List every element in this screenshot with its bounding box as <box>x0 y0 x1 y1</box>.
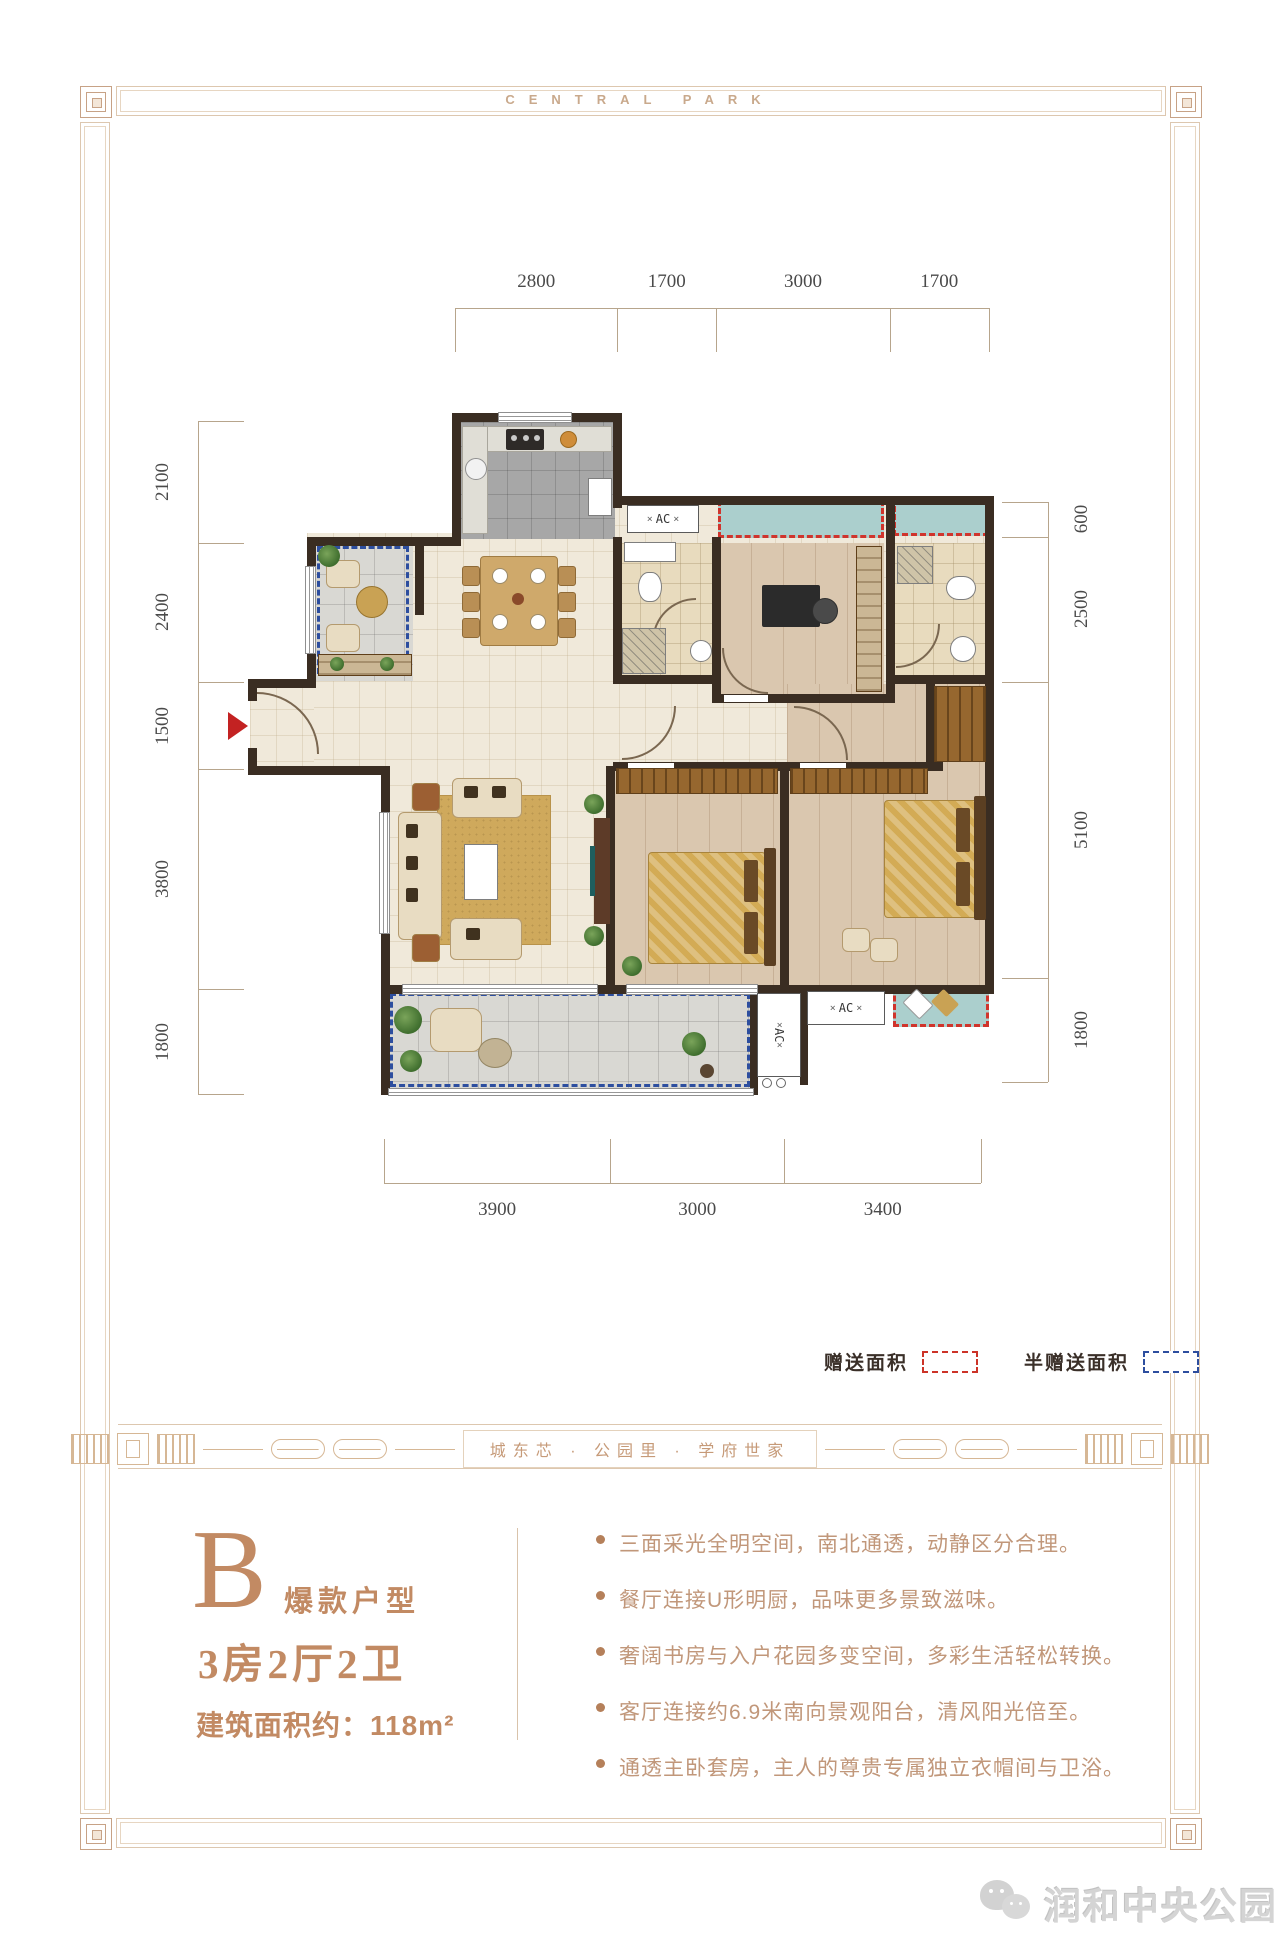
vertical-separator <box>517 1528 518 1740</box>
ac-label: AC <box>772 1028 786 1042</box>
dining-chair <box>558 618 576 638</box>
desk <box>762 585 820 627</box>
basin <box>690 640 712 662</box>
dimension-tick <box>890 308 891 352</box>
plant <box>622 956 642 976</box>
dimension-tick <box>198 682 244 683</box>
dimension-tick <box>1002 537 1048 538</box>
place-setting <box>530 614 546 630</box>
balcony-railing <box>388 1088 754 1096</box>
ac-platform-balcony: ⨯ AC ⨯ <box>757 993 801 1077</box>
floorplan-poster: CENTRAL PARK <box>0 0 1280 1957</box>
place-setting <box>530 568 546 584</box>
ornament-stem <box>1017 1449 1077 1450</box>
shower <box>622 628 666 674</box>
sofa-pillow <box>406 824 418 838</box>
wall <box>415 537 424 615</box>
sofa-loveseat <box>452 778 522 818</box>
plant <box>682 1032 706 1056</box>
shower <box>897 546 933 584</box>
dimension-label: 2400 <box>152 593 174 631</box>
plant <box>330 657 344 671</box>
lattice-ornament <box>157 1434 195 1464</box>
dimension-tick <box>981 1139 982 1183</box>
pill-ornament <box>893 1439 947 1459</box>
bullet-icon <box>596 1759 605 1768</box>
dimension-label: 3000 <box>678 1199 716 1221</box>
bay-window-study <box>718 500 884 538</box>
pillow <box>744 860 758 902</box>
dimension-line <box>384 1183 981 1184</box>
kitchen-counter <box>462 426 488 534</box>
dimension-tick <box>617 308 618 352</box>
entry-garden-window <box>305 566 316 654</box>
dimension-line <box>1048 502 1049 1082</box>
bullet-icon <box>596 1647 605 1656</box>
wall <box>381 985 390 1095</box>
dimension-tick <box>198 543 244 544</box>
garden-table <box>356 586 388 618</box>
walk-in-closet <box>934 686 986 762</box>
sofa-pillow <box>466 928 480 940</box>
dimension-tick <box>610 1139 611 1183</box>
feature-item: 通透主卧套房，主人的尊贵专属独立衣帽间与卫浴。 <box>596 1752 1156 1782</box>
dining-chair <box>462 592 480 612</box>
dining-chair <box>462 618 480 638</box>
wall <box>613 537 622 684</box>
kitchen-window <box>498 412 572 423</box>
ac-label: AC <box>839 1001 853 1015</box>
dimension-tick <box>1002 682 1048 683</box>
pill-ornament <box>333 1439 387 1459</box>
hatch-mark: ⨯ <box>774 1042 785 1048</box>
wall <box>780 766 789 994</box>
fridge <box>588 478 612 516</box>
dimension-line <box>455 308 989 309</box>
divider-line <box>118 1468 1162 1469</box>
dimension-tick <box>198 769 244 770</box>
feature-item: 奢阔书房与入户花园多变空间，多彩生活轻松转换。 <box>596 1640 1156 1670</box>
burner <box>511 435 517 441</box>
dimension-label: 3000 <box>784 271 822 293</box>
bullet-icon <box>596 1591 605 1600</box>
dimension-label: 5100 <box>1071 811 1093 849</box>
dimension-label: 1700 <box>648 271 686 293</box>
burner <box>534 435 540 441</box>
legend-half-gift-label: 半赠送面积 <box>1024 1348 1129 1375</box>
legend-half-gift-swatch <box>1143 1351 1199 1373</box>
wall <box>248 679 316 688</box>
kitchen-sink <box>465 458 487 480</box>
bowl <box>560 431 577 448</box>
lattice-ornament <box>1085 1434 1123 1464</box>
place-setting <box>492 614 508 630</box>
dimension-label: 1700 <box>920 271 958 293</box>
wall <box>886 675 994 684</box>
entry-arrow-icon <box>228 712 248 740</box>
headboard <box>974 796 986 920</box>
dimension-label: 3800 <box>152 860 174 898</box>
hatch-mark: ⨯ <box>856 1003 862 1014</box>
floor-plan: ⨯ AC ⨯ ⨯ AC ⨯ ⨯ AC ⨯ <box>0 0 1280 1280</box>
dimension-label: 3400 <box>864 1199 902 1221</box>
legend-gift-label: 赠送面积 <box>824 1348 908 1375</box>
dimension-label: 2500 <box>1071 590 1093 628</box>
feature-text: 通透主卧套房，主人的尊贵专属独立衣帽间与卫浴。 <box>619 1752 1125 1782</box>
headboard <box>764 848 776 966</box>
dimension-label: 2800 <box>517 271 555 293</box>
divider-line <box>118 1424 1162 1425</box>
sofa-pillow <box>406 856 418 870</box>
dimension-line <box>198 421 199 1094</box>
exterior-notch <box>622 421 993 496</box>
wall <box>985 496 994 993</box>
plant <box>584 926 604 946</box>
sofa-pillow <box>492 786 506 798</box>
bedroom2-window <box>626 984 758 995</box>
desk-chair <box>812 598 838 624</box>
side-table <box>412 783 440 811</box>
dining-chair <box>558 566 576 586</box>
unit-area: 建筑面积约：118m² <box>196 1704 454 1744</box>
pipe-hole <box>776 1078 786 1088</box>
tv-console <box>594 818 610 924</box>
plant <box>394 1006 422 1034</box>
ac-unit-master: ⨯ AC ⨯ <box>807 991 885 1025</box>
dimension-label: 2100 <box>152 463 174 501</box>
bedroom2-wardrobe <box>616 768 778 794</box>
hatch-mark: ⨯ <box>830 1003 836 1014</box>
dimension-tick <box>1002 502 1048 503</box>
wall <box>248 679 257 701</box>
feature-item: 客厅连接约6.9米南向景观阳台，清风阳光倍至。 <box>596 1696 1156 1726</box>
bullet-icon <box>596 1535 605 1544</box>
watermark: 润和中央公园 <box>980 1876 1278 1930</box>
balcony-slider-door <box>402 984 598 995</box>
pill-ornament <box>271 1439 325 1459</box>
ornament-stem <box>395 1449 455 1450</box>
dimension-label: 1800 <box>152 1023 174 1061</box>
dimension-tick <box>384 1139 385 1183</box>
place-setting <box>492 568 508 584</box>
vase-ornament <box>117 1433 149 1465</box>
pillow <box>744 912 758 954</box>
wall <box>613 413 622 508</box>
ornament-stem <box>825 1449 885 1450</box>
feature-list: 三面采光全明空间，南北通透，动静区分合理。餐厅连接U形明厨，品味更多景致滋味。奢… <box>596 1528 1156 1782</box>
pillow <box>956 862 970 906</box>
plan-legend: 赠送面积 半赠送面积 <box>824 1348 1199 1375</box>
feature-text: 三面采光全明空间，南北通透，动静区分合理。 <box>619 1528 1081 1558</box>
ac-label: AC <box>656 512 670 526</box>
lattice-ornament <box>71 1434 109 1464</box>
hatch-mark: ⨯ <box>673 514 679 525</box>
exterior-notch <box>307 421 452 533</box>
door-gap <box>724 695 768 702</box>
dimension-tick <box>716 308 717 352</box>
frame-band-bottom <box>116 1818 1166 1848</box>
bullet-icon <box>596 1703 605 1712</box>
wall <box>886 505 895 695</box>
dimension-tick <box>989 308 990 352</box>
dimension-label: 1800 <box>1071 1011 1093 1049</box>
unit-layout: 3房2厅2卫 <box>198 1630 407 1690</box>
pill-ornament <box>955 1439 1009 1459</box>
study-cabinet <box>856 546 882 692</box>
flower-pot <box>700 1064 714 1078</box>
sofa-pillow <box>406 888 418 902</box>
side-table <box>412 934 440 962</box>
lattice-ornament <box>1171 1434 1209 1464</box>
divider-ornament-band: 城东芯 · 公园里 · 学府世家 <box>0 1430 1280 1468</box>
frame-corner-ornament <box>1170 1818 1202 1850</box>
dimension-tick <box>198 421 244 422</box>
sofa-armchair <box>450 918 522 960</box>
rock-decor <box>478 1038 512 1068</box>
frame-corner-ornament <box>80 1818 112 1850</box>
pillow <box>956 808 970 852</box>
lounge-chair <box>430 1008 482 1052</box>
dimension-label: 600 <box>1071 505 1093 534</box>
plant <box>318 545 340 567</box>
toilet <box>946 576 976 600</box>
living-window <box>379 812 390 934</box>
burner <box>523 435 529 441</box>
wechat-icon <box>980 1880 1034 1926</box>
wall <box>613 496 993 505</box>
plant <box>380 657 394 671</box>
feature-text: 奢阔书房与入户花园多变空间，多彩生活轻松转换。 <box>619 1640 1125 1670</box>
center-dish <box>512 593 524 605</box>
feature-item: 餐厅连接U形明厨，品味更多景致滋味。 <box>596 1584 1156 1614</box>
garden-armchair <box>326 624 360 652</box>
ornament-stem <box>203 1449 263 1450</box>
dining-chair <box>462 566 480 586</box>
sofa-pillow <box>464 786 478 798</box>
dimension-tick <box>784 1139 785 1183</box>
dimension-tick <box>455 308 456 352</box>
basin <box>950 636 976 662</box>
wall <box>452 413 461 545</box>
dimension-tick <box>1002 978 1048 979</box>
dimension-tick <box>1002 1082 1048 1083</box>
dimension-tick <box>198 1094 244 1095</box>
toilet <box>638 572 662 602</box>
unit-tag: 爆款户型 <box>284 1578 420 1620</box>
master-wardrobe <box>790 768 928 794</box>
dimension-label: 1500 <box>152 707 174 745</box>
hatch-mark: ⨯ <box>647 514 653 525</box>
wall <box>613 675 718 684</box>
vanity-sink <box>624 542 676 562</box>
unit-letter: B <box>192 1514 267 1626</box>
plant <box>584 794 604 814</box>
plant <box>400 1050 422 1072</box>
master-bed <box>884 800 986 918</box>
dimension-label: 3900 <box>478 1199 516 1221</box>
feature-item: 三面采光全明空间，南北通透，动静区分合理。 <box>596 1528 1156 1558</box>
wall <box>248 766 390 775</box>
vase-ornament <box>1131 1433 1163 1465</box>
pipe-hole <box>762 1078 772 1088</box>
legend-gift-swatch <box>922 1351 978 1373</box>
exterior-notch <box>307 775 381 993</box>
dimension-tick <box>198 989 244 990</box>
feature-text: 餐厅连接U形明厨，品味更多景致滋味。 <box>619 1584 1009 1614</box>
ottoman <box>842 928 870 952</box>
sofa-main <box>398 812 442 940</box>
project-slogan: 城东芯 · 公园里 · 学府世家 <box>463 1430 817 1468</box>
watermark-text: 润和中央公园 <box>1044 1876 1278 1930</box>
ac-unit-top: ⨯ AC ⨯ <box>627 505 699 533</box>
feature-text: 客厅连接约6.9米南向景观阳台，清风阳光倍至。 <box>619 1696 1091 1726</box>
ottoman <box>870 938 898 962</box>
tv-screen <box>590 846 595 896</box>
coffee-table <box>464 844 498 900</box>
dining-chair <box>558 592 576 612</box>
